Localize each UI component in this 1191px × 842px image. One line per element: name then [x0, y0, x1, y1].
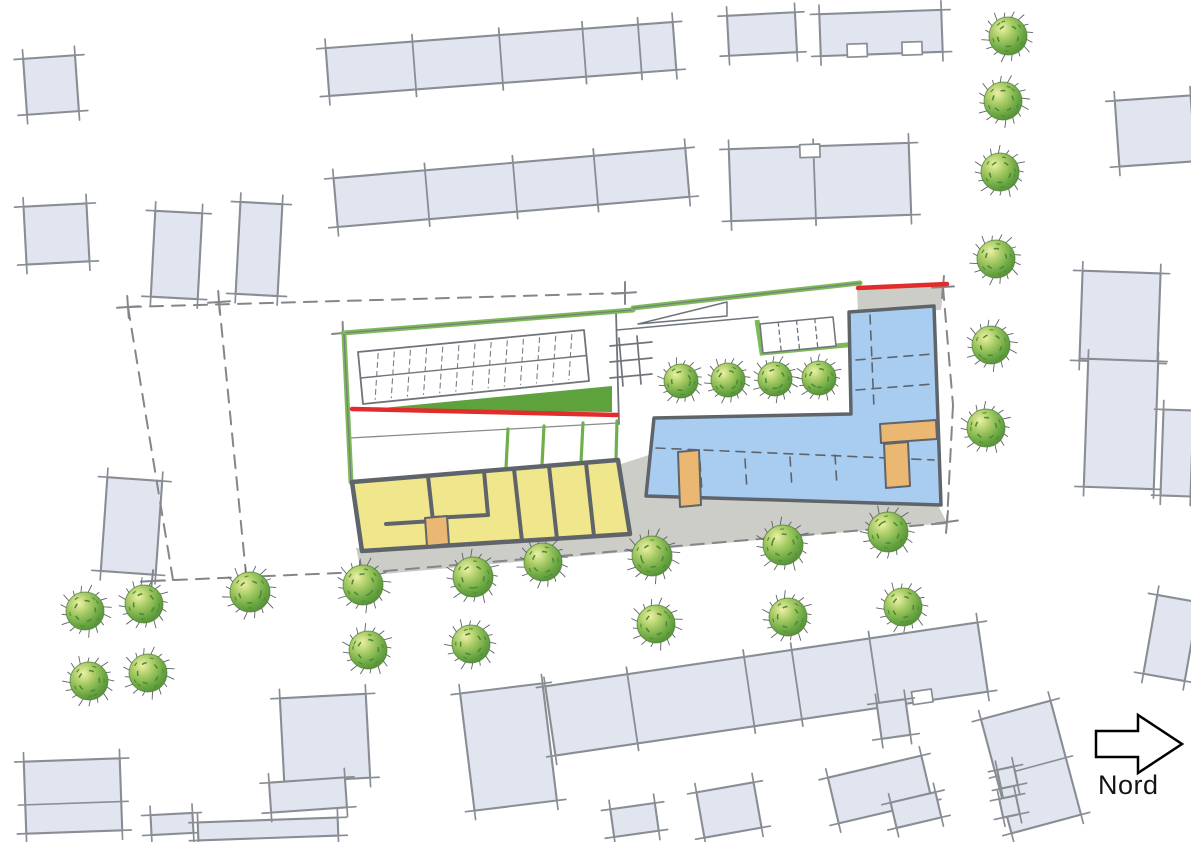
context-building [142, 202, 211, 308]
tree-icon [632, 598, 682, 650]
north-indicator: Nord [1090, 710, 1190, 805]
tree-icon [62, 656, 113, 705]
tree-icon [762, 591, 811, 641]
tree-icon [967, 320, 1017, 372]
tree-icon [658, 358, 702, 403]
door [425, 516, 449, 546]
tree-icon [343, 624, 392, 674]
tree-icon [444, 620, 495, 669]
tree-icon [970, 235, 1021, 285]
tree-icon [124, 647, 174, 699]
stairs [757, 317, 857, 353]
context-building [1135, 586, 1191, 690]
tree-icon [961, 401, 1010, 452]
tree-icon [975, 145, 1024, 196]
context-building [15, 749, 131, 842]
context-building [325, 139, 699, 236]
door [880, 420, 937, 443]
tree-icon [876, 583, 927, 632]
door [678, 450, 701, 507]
context-building [1070, 262, 1169, 373]
context-building [271, 685, 379, 791]
context-building [1106, 86, 1191, 175]
tree-icon [61, 585, 111, 637]
yellow-building [352, 460, 630, 551]
context-building [1075, 350, 1167, 498]
tree-icon [979, 76, 1029, 128]
tree-icon [704, 359, 750, 403]
site-plan [0, 0, 1191, 842]
context-building [92, 468, 171, 584]
site-plan-canvas: Nord [0, 0, 1191, 842]
tree-icon [222, 566, 275, 619]
north-label: Nord [1098, 770, 1159, 801]
tree-icon [754, 357, 799, 403]
door [884, 442, 910, 488]
context-building [972, 692, 1089, 842]
context-building [718, 3, 806, 64]
context-building [536, 614, 996, 765]
tree-icon [119, 577, 168, 627]
tree-icon [797, 354, 841, 400]
context-building [720, 134, 920, 230]
context-building [14, 46, 88, 123]
context-building [810, 1, 951, 65]
context-building [601, 794, 667, 842]
context-building [317, 13, 686, 105]
tree-icon [982, 12, 1033, 62]
context-building [688, 773, 771, 842]
context-building [227, 193, 292, 305]
context-building [15, 194, 99, 273]
